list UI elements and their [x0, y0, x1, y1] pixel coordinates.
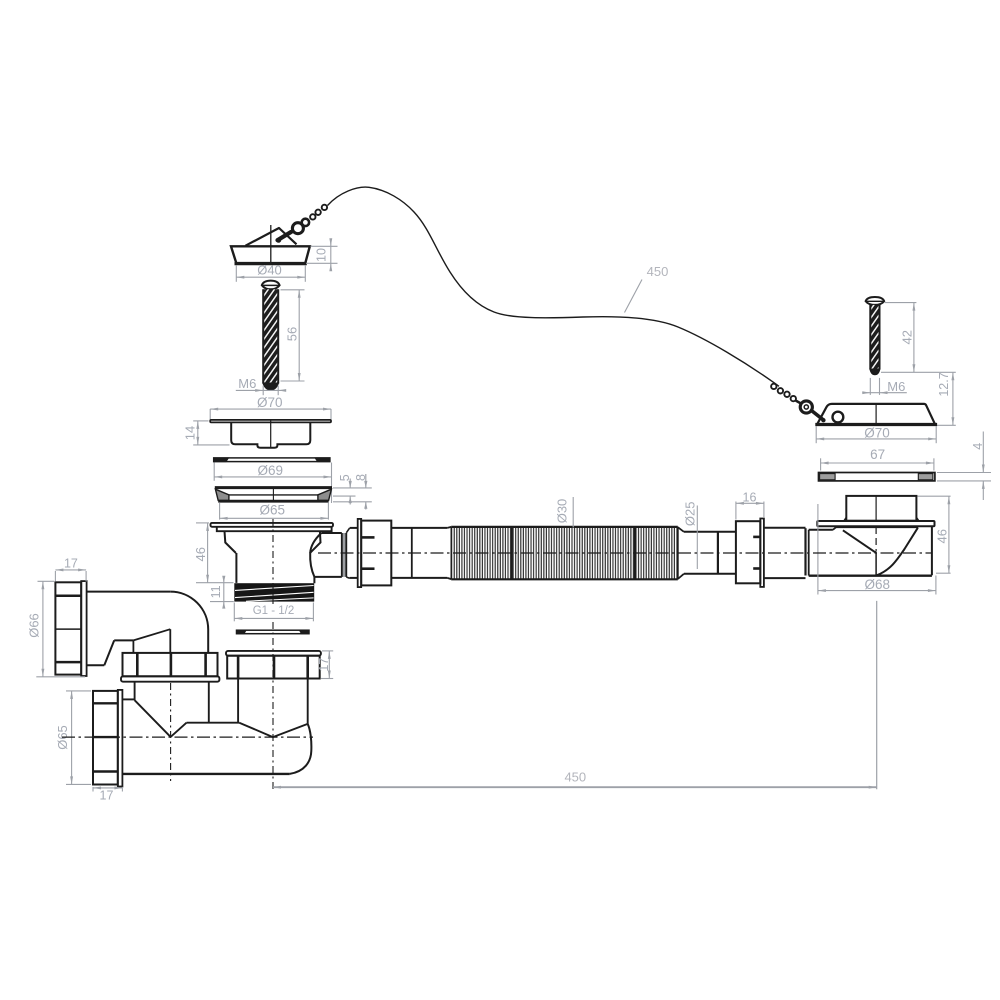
svg-text:56: 56 [284, 327, 299, 341]
svg-text:14: 14 [183, 426, 198, 440]
svg-text:8: 8 [354, 474, 368, 481]
svg-text:G1 - 1/2: G1 - 1/2 [253, 605, 295, 617]
svg-text:Ø70: Ø70 [257, 395, 283, 410]
svg-text:11: 11 [209, 585, 223, 598]
svg-text:4: 4 [971, 443, 985, 450]
svg-text:42: 42 [900, 330, 915, 344]
svg-text:12.7: 12.7 [937, 372, 951, 396]
svg-text:Ø68: Ø68 [865, 577, 891, 592]
svg-text:Ø65: Ø65 [260, 503, 286, 518]
svg-text:67: 67 [870, 447, 885, 462]
svg-text:17: 17 [317, 658, 331, 672]
svg-text:Ø30: Ø30 [555, 499, 570, 524]
svg-text:16: 16 [743, 490, 757, 504]
svg-text:10: 10 [314, 248, 328, 262]
svg-text:17: 17 [64, 556, 78, 570]
svg-text:17: 17 [100, 788, 114, 802]
svg-text:Ø69: Ø69 [258, 463, 284, 478]
svg-text:Ø70: Ø70 [864, 426, 890, 441]
svg-text:M6: M6 [238, 376, 256, 391]
svg-text:5: 5 [338, 474, 352, 481]
svg-text:46: 46 [934, 529, 949, 543]
svg-text:Ø25: Ø25 [683, 502, 698, 527]
svg-text:450: 450 [647, 264, 669, 279]
svg-text:450: 450 [564, 769, 586, 784]
svg-text:Ø40: Ø40 [257, 263, 282, 278]
svg-text:Ø66: Ø66 [26, 613, 41, 638]
svg-text:M6: M6 [887, 379, 905, 394]
svg-text:46: 46 [193, 547, 208, 561]
